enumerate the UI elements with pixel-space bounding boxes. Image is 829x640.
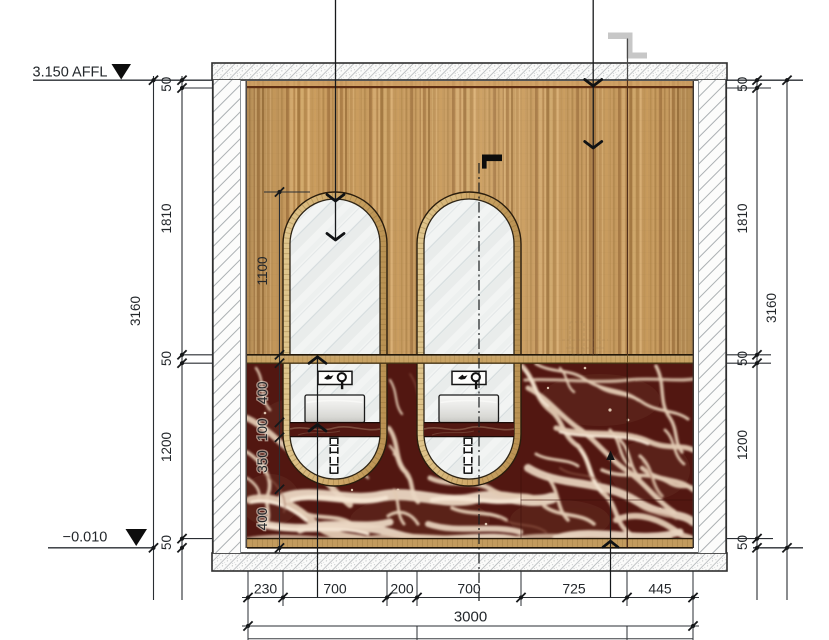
svg-text:50: 50: [735, 535, 750, 550]
svg-text:3.150 AFFL: 3.150 AFFL: [33, 65, 108, 81]
svg-text:700: 700: [323, 581, 347, 597]
svg-text:50: 50: [159, 535, 174, 550]
svg-text:−0.010: −0.010: [63, 530, 108, 546]
svg-text:1810: 1810: [159, 203, 174, 233]
svg-text:3000: 3000: [454, 609, 487, 626]
svg-text:1810: 1810: [735, 203, 750, 233]
svg-text:50: 50: [159, 77, 174, 92]
svg-text:50: 50: [735, 351, 750, 366]
svg-text:50: 50: [159, 351, 174, 366]
svg-text:400: 400: [255, 508, 270, 531]
svg-text:50: 50: [735, 77, 750, 92]
svg-text:350: 350: [255, 450, 270, 473]
svg-text:1200: 1200: [159, 432, 174, 462]
svg-text:230: 230: [254, 581, 278, 597]
svg-text:1200: 1200: [735, 430, 750, 460]
svg-text:400: 400: [255, 381, 270, 404]
svg-text:1100: 1100: [255, 256, 270, 285]
svg-text:3160: 3160: [128, 296, 143, 326]
svg-text:100: 100: [255, 419, 270, 442]
svg-text:3160: 3160: [764, 293, 779, 323]
svg-text:700: 700: [457, 581, 481, 597]
svg-text:725: 725: [562, 581, 586, 597]
svg-text:445: 445: [648, 581, 672, 597]
svg-text:200: 200: [390, 581, 414, 597]
